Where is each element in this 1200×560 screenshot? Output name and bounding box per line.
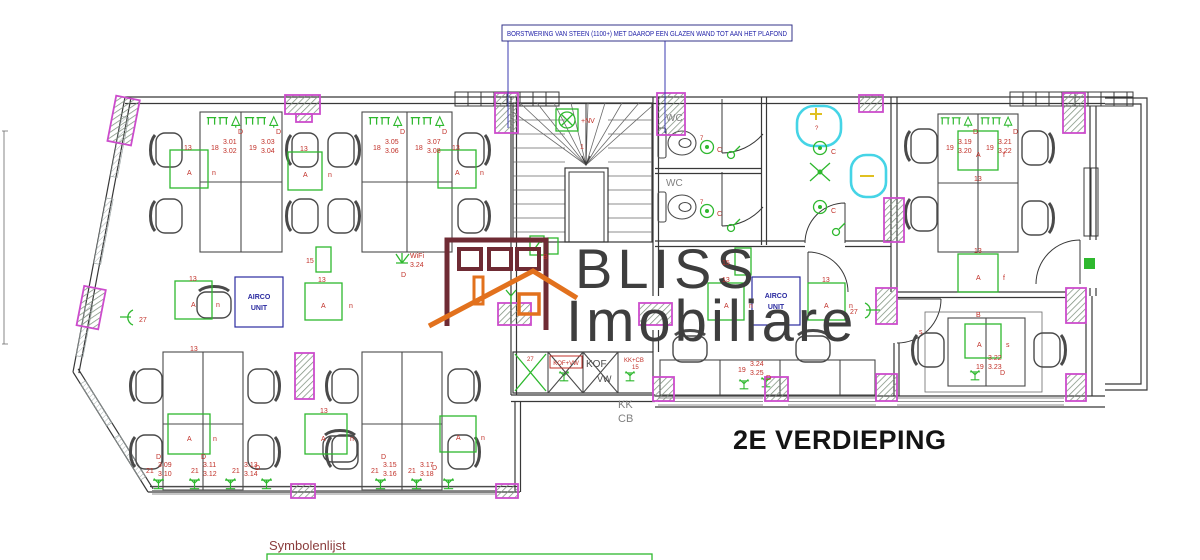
svg-text:19: 19: [986, 145, 994, 152]
svg-text:3.03: 3.03: [261, 139, 275, 146]
svg-text:3.11: 3.11: [203, 462, 216, 469]
svg-text:3.20: 3.20: [958, 148, 972, 155]
svg-text:21: 21: [232, 468, 240, 475]
svg-text:15: 15: [632, 365, 639, 371]
svg-text:27: 27: [850, 309, 858, 316]
svg-text:n: n: [212, 170, 216, 177]
floorplan-page: BORSTWERING VAN STEEN (1100+) MET DAAROP…: [0, 0, 1200, 560]
toilets: [658, 128, 696, 222]
kof-label: KOF: [586, 359, 607, 370]
svg-text:15: 15: [722, 260, 730, 267]
svg-text:n: n: [328, 172, 332, 179]
svg-text:D: D: [255, 465, 260, 472]
svg-text:A: A: [455, 170, 460, 177]
svg-text:A: A: [187, 170, 192, 177]
floor-title: 2E VERDIEPING: [733, 425, 947, 455]
nv-label: +NV: [581, 118, 595, 125]
svg-text:D: D: [238, 129, 243, 136]
svg-text:n: n: [216, 302, 220, 309]
stair-light-symbol: [556, 109, 578, 131]
svg-text:D: D: [432, 465, 437, 472]
svg-text:A: A: [187, 436, 192, 443]
svg-text:3.22: 3.22: [998, 148, 1012, 155]
svg-text:13: 13: [722, 277, 730, 284]
svg-text:A: A: [977, 342, 982, 349]
svg-text:n: n: [213, 436, 217, 443]
svg-text:18: 18: [373, 145, 381, 152]
svg-text:19: 19: [946, 145, 954, 152]
svg-text:18: 18: [415, 145, 423, 152]
svg-text:UNIT: UNIT: [251, 305, 268, 312]
svg-text:A: A: [824, 303, 829, 310]
svg-text:A: A: [191, 302, 196, 309]
svg-text:13: 13: [300, 146, 308, 153]
svg-text:AIRCO: AIRCO: [248, 294, 271, 301]
cross-symbol: [810, 163, 830, 181]
svg-text:19: 19: [976, 364, 984, 371]
svg-text:D: D: [381, 454, 386, 461]
svg-text:3.25: 3.25: [750, 370, 764, 377]
svg-text:13: 13: [974, 176, 982, 183]
svg-text:13: 13: [822, 277, 830, 284]
adjacent-drawing-edge: [2, 131, 8, 344]
door-handles: [728, 146, 846, 236]
svg-text:3.12: 3.12: [203, 471, 217, 478]
wc-label-2: WC: [666, 178, 683, 189]
logo-text-2: Imobiliare: [566, 289, 857, 354]
svg-text:15: 15: [306, 258, 314, 265]
svg-text:21: 21: [146, 468, 154, 475]
svg-text:n: n: [350, 436, 354, 443]
svg-text:D: D: [401, 272, 406, 279]
svg-text:3.21: 3.21: [998, 139, 1012, 146]
floorplan-canvas: BORSTWERING VAN STEEN (1100+) MET DAAROP…: [0, 0, 1200, 560]
svg-text:UNIT: UNIT: [768, 304, 785, 311]
svg-text:C: C: [831, 208, 836, 215]
svg-text:A: A: [321, 436, 326, 443]
svg-text:3.10: 3.10: [158, 471, 172, 478]
svg-text:A: A: [724, 303, 729, 310]
svg-text:A: A: [456, 435, 461, 442]
bottom-window-right: [658, 398, 1064, 405]
svg-text:C: C: [831, 149, 836, 156]
svg-text:3.08: 3.08: [427, 148, 441, 155]
svg-text:19: 19: [738, 367, 746, 374]
svg-text:A: A: [976, 152, 981, 159]
svg-text:D: D: [400, 129, 405, 136]
wifi-symbol: [396, 253, 409, 263]
cb-label: CB: [618, 413, 633, 425]
svg-text:A: A: [321, 303, 326, 310]
washbasins: [797, 106, 886, 197]
svg-text:AIRCO: AIRCO: [765, 293, 788, 300]
svg-text:1: 1: [580, 144, 584, 151]
svg-text:3.18: 3.18: [420, 471, 434, 478]
green-square-marker: [1084, 258, 1095, 269]
vw-label: VW: [597, 374, 612, 384]
svg-text:3.02: 3.02: [223, 148, 237, 155]
svg-text:D: D: [442, 129, 447, 136]
svg-text:13: 13: [320, 408, 328, 415]
symbol-list-box: [267, 554, 652, 560]
wc-label-1: WC: [666, 113, 683, 124]
svg-text:21: 21: [371, 468, 379, 475]
wifi-label: WiFi: [410, 253, 424, 260]
svg-text:A: A: [976, 275, 981, 282]
svg-text:3.09: 3.09: [158, 462, 172, 469]
svg-text:D: D: [156, 454, 161, 461]
svg-text:C: C: [717, 147, 722, 154]
bliss-logo: BLISS Imobiliare: [429, 237, 857, 354]
svg-text:27: 27: [139, 317, 147, 324]
svg-text:21: 21: [191, 468, 199, 475]
annotation-note: BORSTWERING VAN STEEN (1100+) MET DAAROP…: [502, 25, 792, 133]
svg-text:s: s: [1006, 342, 1010, 349]
svg-text:3.15: 3.15: [383, 462, 397, 469]
svg-text:13: 13: [190, 346, 198, 353]
annotation-text: BORSTWERING VAN STEEN (1100+) MET DAAROP…: [507, 31, 787, 38]
svg-text:D: D: [1000, 370, 1005, 377]
svg-text:3.14: 3.14: [244, 471, 258, 478]
toilet-2: [658, 192, 696, 222]
svg-text:C: C: [717, 211, 722, 218]
svg-text:18: 18: [211, 145, 219, 152]
svg-text:13: 13: [974, 248, 982, 255]
svg-text:27: 27: [527, 357, 534, 363]
svg-text:D: D: [1013, 129, 1018, 136]
svg-text:D: D: [766, 375, 771, 382]
svg-text:21: 21: [408, 468, 416, 475]
svg-text:3.04: 3.04: [261, 148, 275, 155]
svg-text:3.22: 3.22: [988, 355, 1002, 362]
svg-text:3.05: 3.05: [385, 139, 399, 146]
svg-text:D: D: [201, 454, 206, 461]
symbol-list-title: Symbolenlijst: [269, 538, 346, 553]
svg-text:3.24: 3.24: [410, 262, 424, 269]
symbol-list: Symbolenlijst: [267, 538, 652, 560]
svg-text:13: 13: [184, 145, 192, 152]
svg-text:n: n: [349, 303, 353, 310]
svg-text:3.07: 3.07: [427, 139, 441, 146]
svg-text:3.06: 3.06: [385, 148, 399, 155]
kkcb-label: KK+CB: [624, 358, 644, 364]
svg-text:n: n: [480, 170, 484, 177]
svg-text:3.01: 3.01: [223, 139, 237, 146]
svg-text:13: 13: [452, 145, 460, 152]
svg-text:3.19: 3.19: [958, 139, 972, 146]
svg-text:n: n: [749, 303, 753, 310]
svg-text:3.16: 3.16: [383, 471, 397, 478]
svg-text:D: D: [276, 129, 281, 136]
terrace-outline: [1105, 98, 1147, 390]
kk-label: KK: [618, 399, 633, 411]
svg-text:A: A: [303, 172, 308, 179]
svg-text:?: ?: [815, 126, 819, 132]
svg-text:D: D: [973, 129, 978, 136]
desk-block-c: [163, 352, 243, 490]
svg-text:3.24: 3.24: [750, 361, 764, 368]
kofvw-label: KOF+VW: [553, 361, 579, 367]
svg-text:B: B: [976, 312, 981, 319]
svg-text:13: 13: [189, 276, 197, 283]
bracket-left: [120, 310, 133, 325]
svg-text:n: n: [481, 435, 485, 442]
svg-text:s: s: [919, 329, 923, 336]
svg-text:19: 19: [249, 145, 257, 152]
svg-text:13: 13: [318, 277, 326, 284]
svg-text:f: f: [1003, 275, 1005, 282]
svg-text:B: B: [543, 254, 548, 261]
